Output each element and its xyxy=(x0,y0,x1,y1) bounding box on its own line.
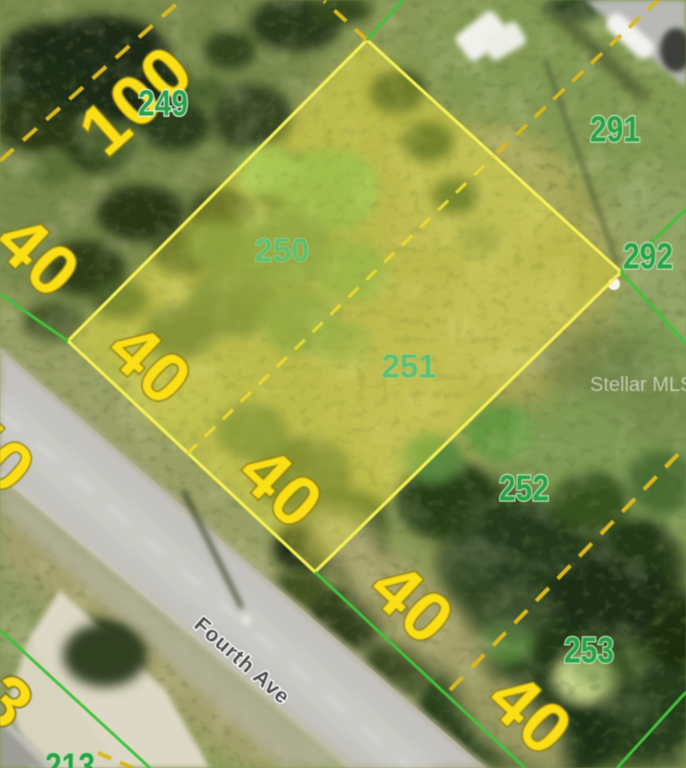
svg-text:Stellar MLS: Stellar MLS xyxy=(590,374,686,396)
svg-text:251: 251 xyxy=(381,348,436,385)
svg-text:253: 253 xyxy=(564,630,614,671)
svg-text:250: 250 xyxy=(254,232,309,269)
svg-text:252: 252 xyxy=(499,468,549,509)
svg-text:213: 213 xyxy=(45,746,95,768)
svg-text:249: 249 xyxy=(138,83,188,124)
svg-text:291: 291 xyxy=(590,109,640,150)
svg-text:292: 292 xyxy=(623,236,673,277)
